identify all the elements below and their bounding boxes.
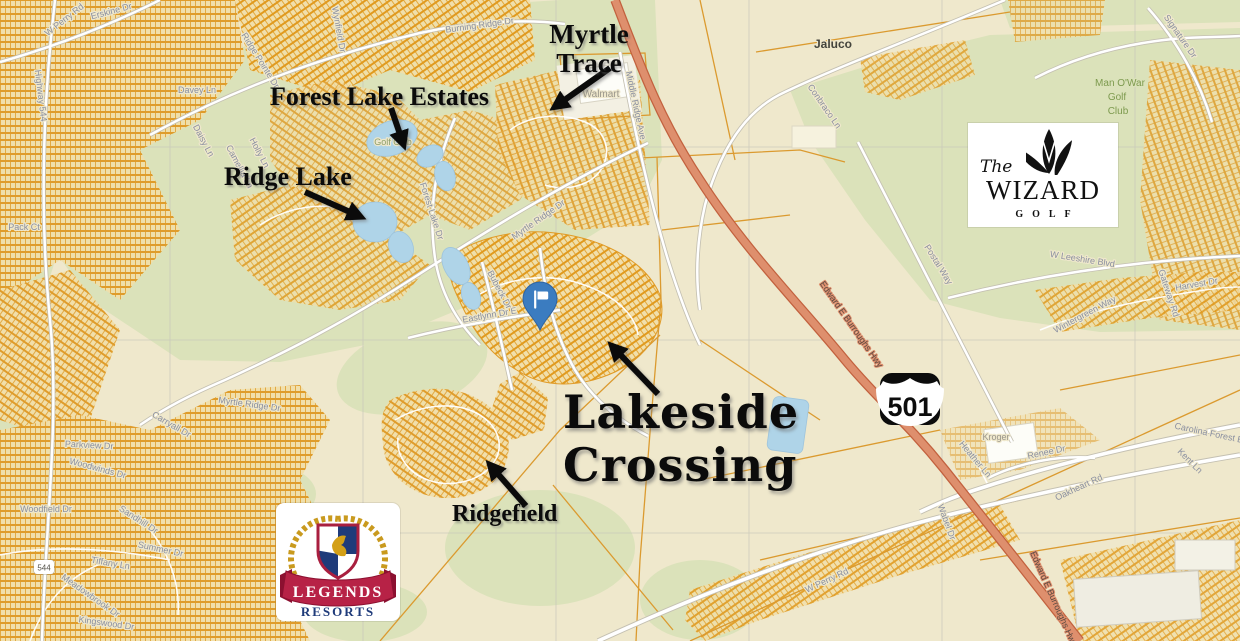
base-map: Burning Ridge Dr W Perry Rd Erskine Dr D… xyxy=(0,0,1240,641)
street-label: Davey Ln xyxy=(178,85,216,95)
street-label: Pack Ct xyxy=(8,222,40,232)
label-ridgefield: Ridgefield xyxy=(452,502,557,528)
label-myrtle-trace-line1: Myrtle xyxy=(537,20,641,49)
man-o-war-label: Man O'War xyxy=(1095,78,1146,89)
wizard-fan-icon xyxy=(1026,127,1072,175)
label-myrtle-trace: Myrtle Trace xyxy=(537,20,641,78)
legends-logo-name: LEGENDS xyxy=(293,584,383,601)
wizard-logo-name: WIZARD xyxy=(968,175,1118,206)
legends-crest-icon: LEGENDS RESORTS xyxy=(276,503,400,621)
kroger-label: Kroger xyxy=(982,432,1009,442)
street-label: Woodfield Dr xyxy=(20,504,72,514)
label-lakeside-line2: Crossing xyxy=(563,439,799,492)
golf-club-label: Golf Club xyxy=(374,137,412,147)
wizard-golf-logo: The WIZARD GOLF xyxy=(968,123,1118,227)
wizard-logo-prefix: The xyxy=(980,157,1012,177)
jaluco-label: Jaluco xyxy=(814,37,852,51)
label-ridge-lake: Ridge Lake xyxy=(224,163,352,191)
legends-logo-tagline: RESORTS xyxy=(301,604,375,619)
legends-resorts-logo: LEGENDS RESORTS xyxy=(276,503,400,621)
label-lakeside-crossing: Lakeside Crossing xyxy=(563,386,799,492)
label-lakeside-line1: Lakeside xyxy=(563,386,799,439)
man-o-war-label: Club xyxy=(1108,106,1129,117)
label-myrtle-trace-line2: Trace xyxy=(537,49,641,78)
map-canvas[interactable]: Burning Ridge Dr W Perry Rd Erskine Dr D… xyxy=(0,0,1240,641)
walmart-label: Walmart xyxy=(583,89,620,100)
man-o-war-label: Golf xyxy=(1108,92,1127,103)
route-544-number: 544 xyxy=(37,564,51,573)
label-forest-lake-estates: Forest Lake Estates xyxy=(270,83,489,111)
wizard-logo-tagline: GOLF xyxy=(968,209,1118,220)
